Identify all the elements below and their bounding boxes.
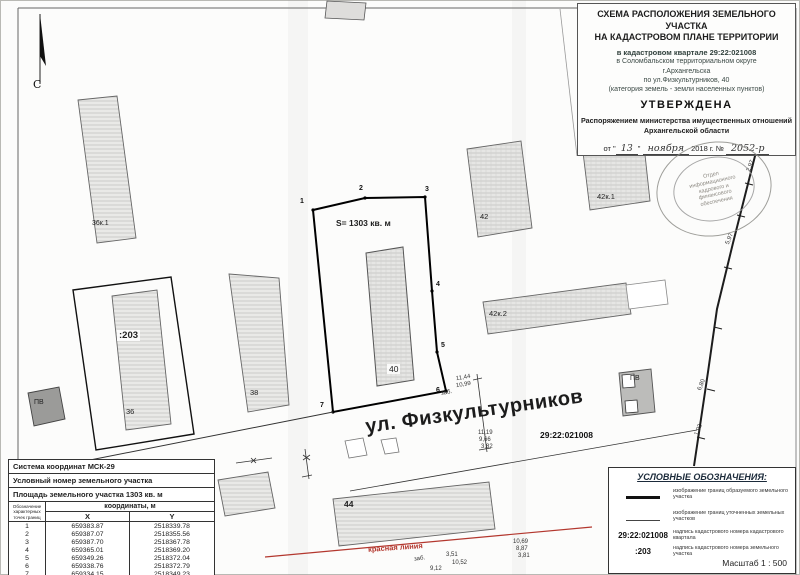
order-line2: Архангельской области (644, 126, 729, 135)
y-value: 2518372.79 (130, 562, 214, 570)
stamp-text: Отдел информационного кадрового и финанс… (687, 167, 740, 210)
legend-box: УСЛОВНЫЕ ОБОЗНАЧЕНИЯ: изображение границ… (608, 467, 796, 574)
north-arrow-icon (40, 14, 46, 84)
city-line: г.Архангельска (578, 67, 795, 76)
cadastral-number-row: Условный номер земельного участка (9, 474, 214, 488)
coord-row: 6 659338.76 2518372.79 (9, 562, 214, 570)
x-value: 659349.26 (46, 554, 130, 562)
district-line: в Соломбальском территориальном округе (578, 57, 795, 66)
coordinate-table: Система координат МСК-29 Условный номер … (8, 459, 215, 575)
x-value: 659383.87 (46, 522, 130, 530)
building-42-shape (467, 141, 532, 237)
x-value: 659365.01 (46, 546, 130, 554)
date-prefix: от " (604, 144, 616, 153)
legend-item-text: надпись кадастрового номера кадастрового… (673, 530, 791, 542)
vertex-dot (430, 289, 433, 292)
coord-row: 2 659387.07 2518355.56 (9, 530, 214, 538)
order-line1: Распоряжением министерства имущественных… (581, 116, 792, 125)
pv-right-inner-square-2 (625, 400, 638, 413)
y-value: 2518367.78 (130, 538, 214, 546)
building-36-label: 36 (126, 407, 134, 416)
quarter-number-sample: 29:22:021008 (613, 531, 673, 540)
street-edge-line (85, 412, 333, 461)
category-line: (категория земель - земли населенных пун… (578, 85, 795, 94)
plot-area-row: Площадь земельного участка 1303 кв. м (9, 488, 214, 502)
building-pv-left-label: ПВ (34, 399, 44, 406)
vertex-7: 7 (320, 402, 324, 409)
quarter-number-label: 29:22:021008 (540, 430, 593, 440)
y-column-header: Y (130, 512, 214, 522)
coord-row: 3 659387.70 2518367.78 (9, 538, 214, 546)
measurement: 10,52 (452, 560, 467, 566)
coord-row: 7 659334.15 2518349.23 (9, 570, 214, 575)
structure-small-1 (345, 438, 367, 458)
plot-area-label: S= 1303 кв. м (336, 218, 391, 228)
legend-item: изображение границ образуемого земельног… (613, 486, 791, 504)
points-column-header: Обозначение характерных точек границ (9, 502, 46, 522)
vertex-1: 1 (300, 198, 304, 205)
pole-symbol-2 (302, 449, 312, 479)
building-42k2-extension-shape (626, 280, 668, 309)
x-value: 659334.15 (46, 570, 130, 575)
coord-grid-header: Обозначение характерных точек границ коо… (9, 502, 214, 522)
measurement: 9,12 (430, 566, 442, 572)
building-small-left-shape (218, 472, 275, 516)
building-42k1-label: 42к.1 (597, 192, 615, 201)
vertex-3: 3 (425, 186, 429, 193)
scheme-title-line1: СХЕМА РАСПОЛОЖЕНИЯ ЗЕМЕЛЬНОГО УЧАСТКА (578, 9, 795, 32)
x-value: 659338.76 (46, 562, 130, 570)
building-38-label: 38 (250, 388, 258, 397)
title-block: СХЕМА РАСПОЛОЖЕНИЯ ЗЕМЕЛЬНОГО УЧАСТКА НА… (577, 3, 796, 156)
legend-item-text: надпись кадастрового номера земельного у… (673, 546, 791, 558)
coord-system-row: Система координат МСК-29 (9, 460, 214, 474)
building-38-shape (229, 274, 289, 412)
quarter-line: в кадастровом квартале 29:22:021008 (578, 48, 795, 57)
approved-label: УТВЕРЖДЕНА (578, 99, 795, 111)
legend-item-text: изображение границ уточненных земельных … (673, 511, 791, 523)
building-pv-right-label: ПВ (630, 375, 640, 382)
scale-label: Масштаб 1 : 500 (722, 558, 787, 568)
point-number: 4 (9, 546, 46, 554)
measurement: 3,82 (481, 444, 493, 450)
legend-item: изображение границ уточненных земельных … (613, 508, 791, 526)
coord-row: 5 659349.26 2518372.04 (9, 554, 214, 562)
thin-line-sample (613, 508, 673, 526)
street-line: по ул.Физкультурников, 40 (578, 76, 795, 85)
measurement: 3,51 (446, 552, 458, 558)
point-number: 5 (9, 554, 46, 562)
building-44-shape (333, 482, 495, 546)
y-value: 2518369.20 (130, 546, 214, 554)
building-42k2-label: 42к.2 (489, 309, 507, 318)
y-value: 2518355.56 (130, 530, 214, 538)
legend-title: УСЛОВНЫЕ ОБОЗНАЧЕНИЯ: (609, 472, 795, 482)
structure-small-2 (381, 438, 399, 454)
plot-203-label: :203 (117, 330, 140, 341)
date-day-handwritten: 13 (616, 143, 638, 155)
building-top-edge-shape (325, 1, 366, 20)
coord-row: 1 659383.87 2518339.78 (9, 522, 214, 530)
vertex-dot (435, 350, 438, 353)
building-36-shape (112, 290, 171, 430)
vertex-dot (423, 195, 426, 198)
x-column-header: X (46, 512, 130, 522)
pole-symbol-1 (236, 458, 272, 463)
building-40-label: 40 (387, 364, 400, 374)
north-label: С (33, 78, 41, 91)
vertex-6: 6 (436, 387, 440, 394)
coords-column-header: координаты, м (46, 502, 214, 512)
y-value: 2518339.78 (130, 522, 214, 530)
scheme-title-line2: НА КАДАСТРОВОМ ПЛАНЕ ТЕРРИТОРИИ (578, 32, 795, 44)
date-mid: " (638, 144, 641, 153)
building-44-label: 44 (344, 499, 353, 509)
point-number: 3 (9, 538, 46, 546)
legend-item: 29:22:021008 надпись кадастрового номера… (613, 530, 791, 542)
y-value: 2518372.04 (130, 554, 214, 562)
vertex-4: 4 (436, 281, 440, 288)
vertex-dot (363, 196, 366, 199)
stamp-inner-circle: Отдел информационного кадрового и финанс… (667, 149, 761, 229)
x-value: 659387.07 (46, 530, 130, 538)
point-number: 6 (9, 562, 46, 570)
point-number: 1 (9, 522, 46, 530)
cadastral-scheme-document: С 36к.1 :203 36 38 40 42 42к.1 42к.2 44 … (0, 0, 800, 575)
measurement: 9,66 (479, 437, 491, 443)
legend-item-text: изображение границ образуемого земельног… (673, 489, 791, 501)
building-36k1-label: 36к.1 (92, 220, 109, 227)
y-value: 2518349.23 (130, 570, 214, 575)
measurement: 11,19 (478, 430, 493, 436)
measurement: 10,69 (513, 539, 528, 545)
legend-item: :203 надпись кадастрового номера земельн… (613, 546, 791, 558)
vertex-5: 5 (441, 342, 445, 349)
measurement: 3,81 (518, 553, 530, 559)
measurement: 8,87 (516, 546, 528, 552)
point-number: 7 (9, 570, 46, 575)
building-42-label: 42 (480, 212, 488, 221)
x-value: 659387.70 (46, 538, 130, 546)
coord-row: 4 659365.01 2518369.20 (9, 546, 214, 554)
thick-line-sample (613, 486, 673, 504)
plot-number-sample: :203 (613, 547, 673, 556)
vertex-dot (311, 208, 314, 211)
order-line: Распоряжением министерства имущественных… (578, 116, 795, 135)
building-pv-left-shape (28, 387, 65, 426)
frame-diagonal-line (560, 9, 577, 156)
vertex-2: 2 (359, 185, 363, 192)
point-number: 2 (9, 530, 46, 538)
